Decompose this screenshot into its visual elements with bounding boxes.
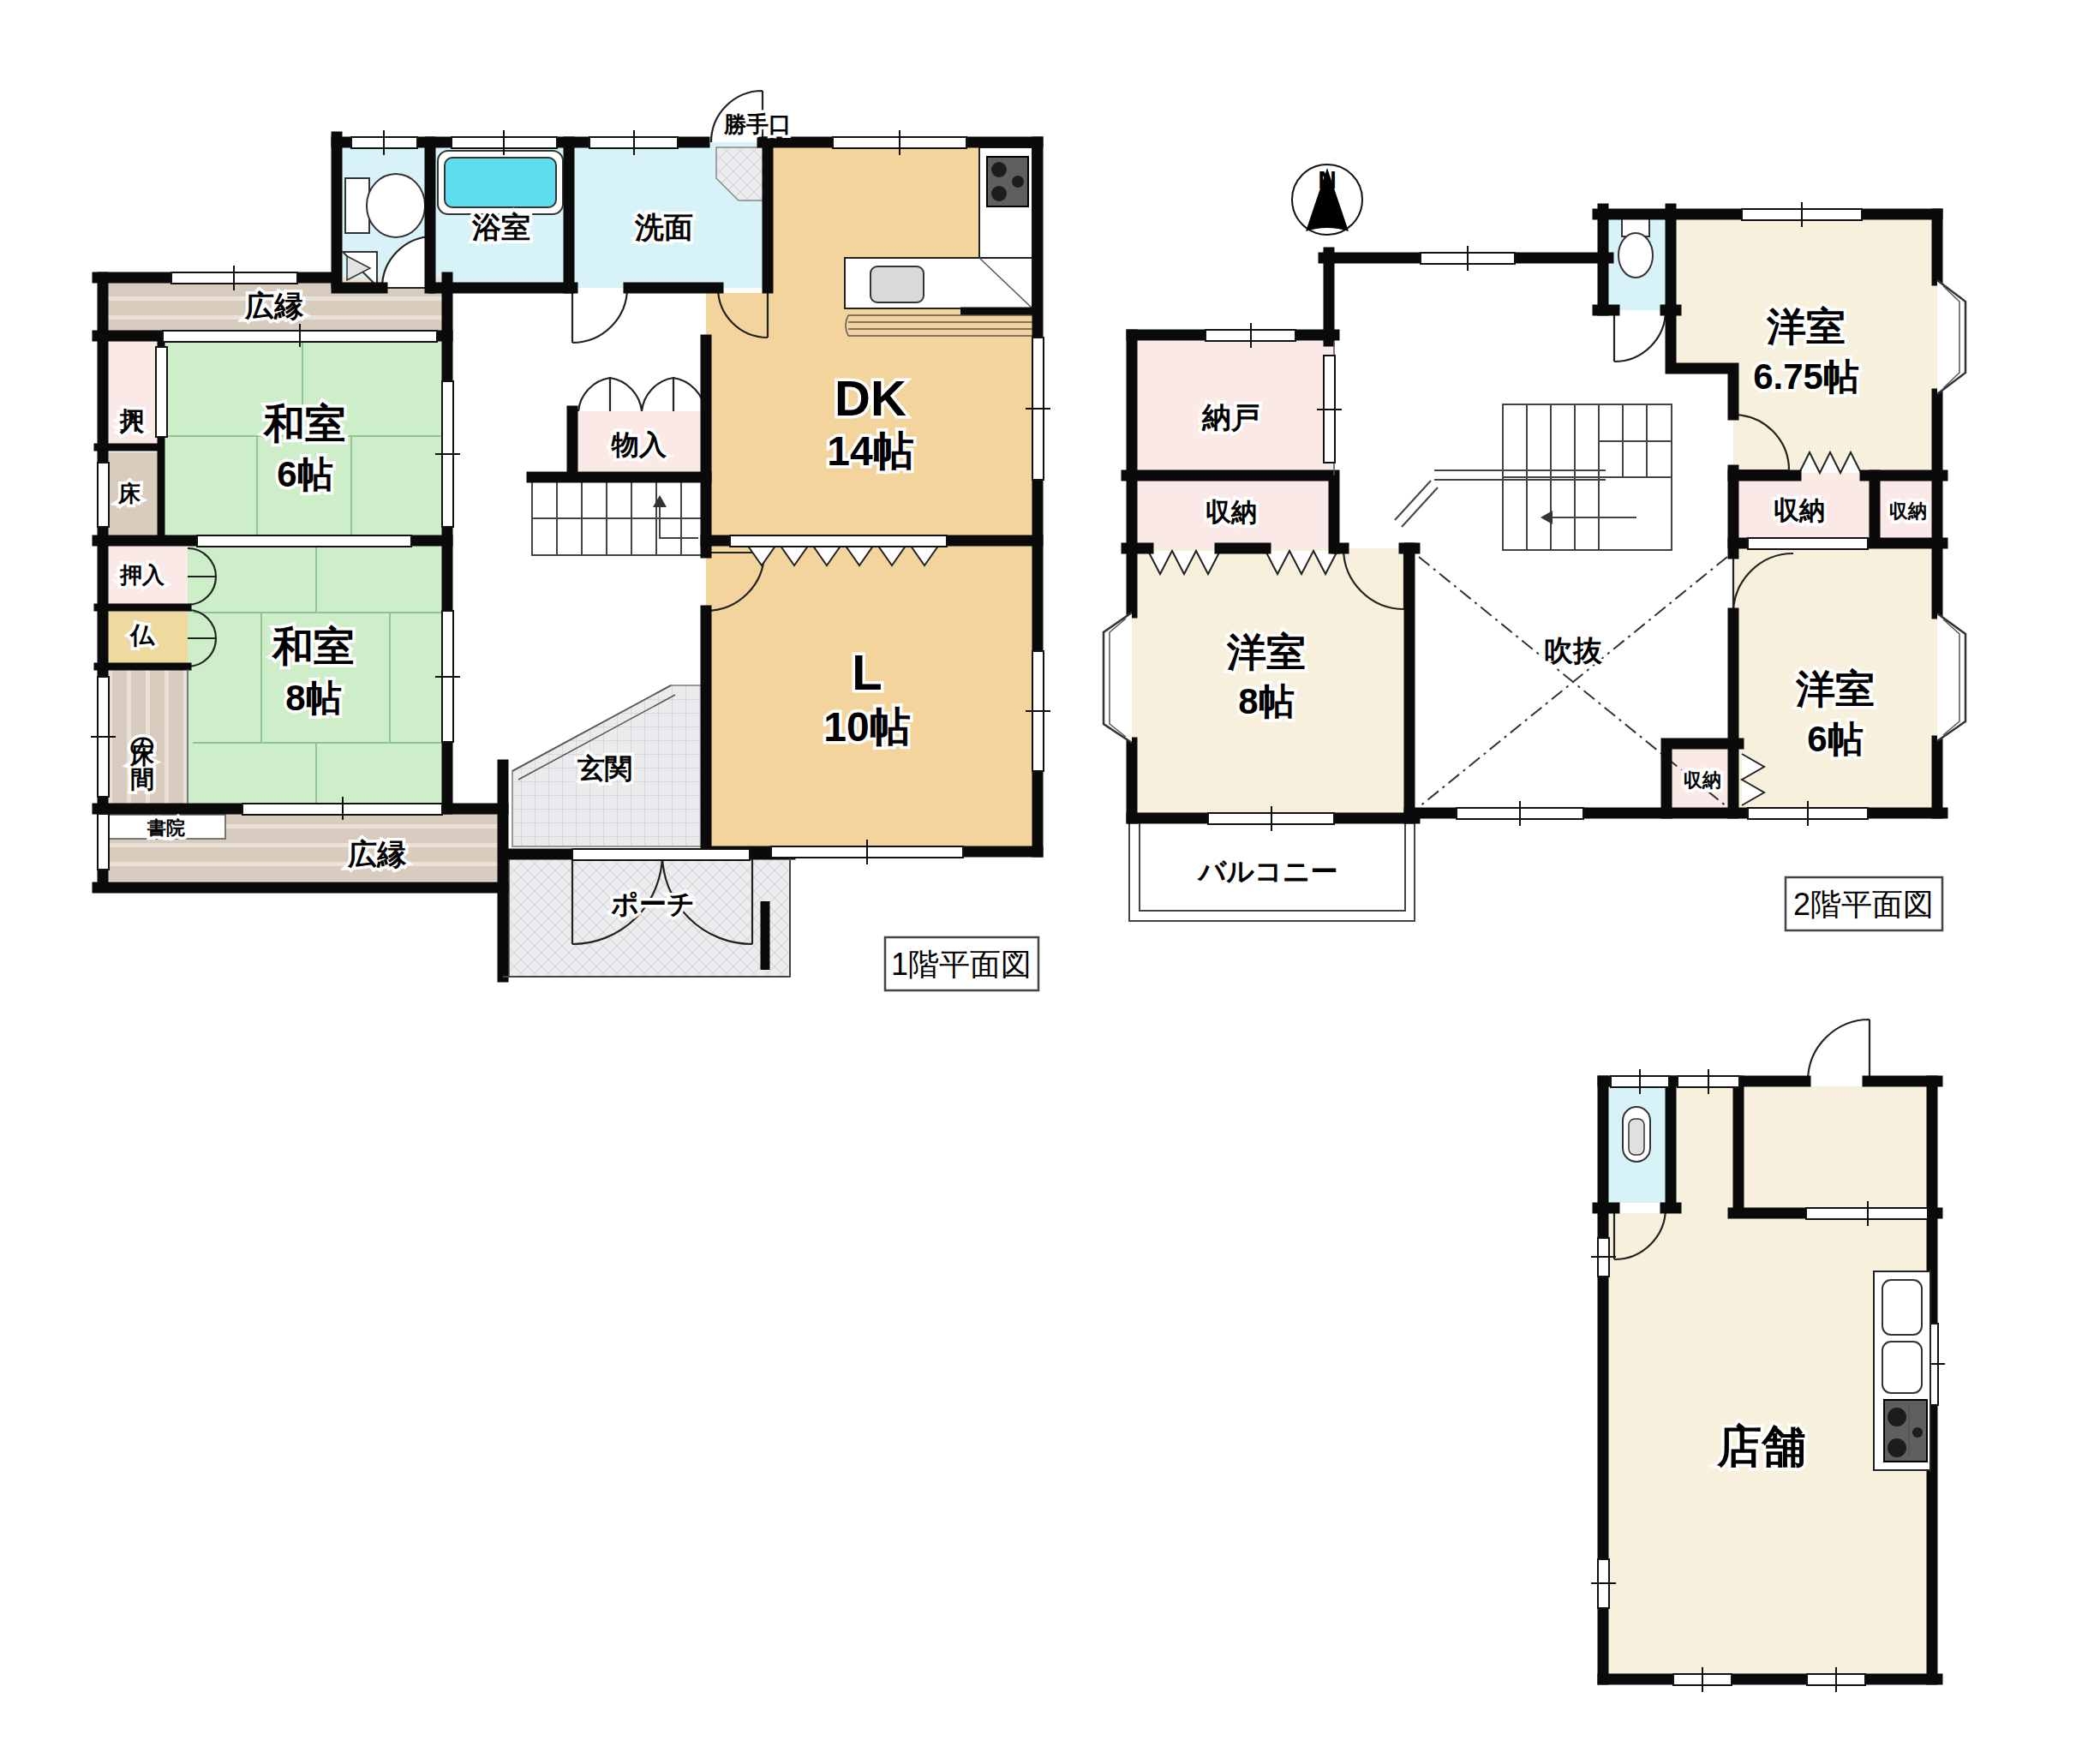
room-label-shuno-left: 収納 [1206, 498, 1257, 526]
store-toilet-icon [1623, 1107, 1650, 1162]
toilet2-door [1614, 310, 1666, 362]
room-label-porch: ポーチ [611, 888, 695, 919]
kitchen-sink [871, 266, 924, 302]
room-size-yoshitsu6: 6帖 [1807, 719, 1863, 759]
floor1-plan: 勝手口 浴室 洗面 DK 14帖 広縁 押入 和室 6帖 床 物入 押入 仏 床… [91, 91, 1050, 990]
room-label-fukinuke: 吹抜 [1544, 634, 1603, 667]
store-back-door [1808, 1020, 1870, 1081]
store-kitchen-fixtures [1874, 1271, 1930, 1470]
bay-window-675 [1937, 280, 1965, 394]
store-plan: 店舗 [1591, 1020, 1945, 1692]
washitsu8-room [188, 541, 447, 809]
floor1-title-box: 1階平面図 [885, 937, 1038, 990]
room-label-katteguchi: 勝手口 [723, 111, 791, 137]
compass-icon: N [1292, 164, 1362, 235]
room-label-toko: 床 [117, 481, 141, 506]
yoshitsu8-closet-accordion-1 [1148, 551, 1220, 574]
room-label-washitsu8: 和室 [271, 624, 355, 669]
room-label-butsu: 仏 [129, 622, 155, 649]
store-corridor [1673, 1086, 1733, 1213]
room-label-oshiire-mid: 押入 [119, 562, 165, 588]
room-label-tenpo: 店舗 [1716, 1421, 1806, 1471]
floor2-title-box: 2階平面図 [1786, 877, 1942, 930]
stairs-2f [1503, 404, 1672, 550]
room-label-shoin: 書院 [147, 817, 185, 839]
toilet1-icon [345, 174, 425, 237]
floor-plan-page: 勝手口 浴室 洗面 DK 14帖 広縁 押入 和室 6帖 床 物入 押入 仏 床… [0, 0, 2100, 1764]
room-label-hiroen-bottom: 広縁 [347, 838, 407, 870]
room-label-hiroen-top: 広縁 [244, 290, 304, 322]
store-backroom [1744, 1086, 1927, 1208]
room-size-yoshitsu8: 8帖 [1238, 681, 1294, 721]
yoshitsu675-closet-accordion [1799, 452, 1861, 473]
room-label-senmen: 洗面 [634, 211, 693, 243]
room-label-monoire: 物入 [611, 429, 667, 460]
wall-1f-veranda-top [98, 137, 337, 283]
wall-2f-top-mid [1324, 253, 1608, 341]
room-label-yoshitsu675: 洋室 [1766, 304, 1846, 349]
room-size-washitsu6: 6帖 [277, 454, 332, 494]
bay-window-6 [1937, 613, 1965, 741]
room-label-shuno-wide: 収納 [1774, 496, 1825, 524]
floor2-title: 2階平面図 [1793, 887, 1934, 922]
store-sink-1 [1882, 1280, 1922, 1335]
bay-window-8 [1104, 613, 1132, 743]
wall-2f-hall-east [1671, 310, 1733, 813]
yoshitsu8-closet-accordion-2 [1265, 551, 1337, 574]
room-size-living: 10帖 [823, 704, 910, 750]
room-size-yoshitsu675: 6.75帖 [1753, 356, 1859, 397]
room-label-dk: DK [835, 370, 906, 426]
stairs-1f [532, 481, 706, 555]
store-sink-2 [1882, 1342, 1922, 1393]
void-dashed-x [1419, 557, 1727, 807]
room-label-shuno-bottom: 収納 [1684, 769, 1721, 791]
bath-door [572, 288, 627, 343]
floor1-title: 1階平面図 [891, 947, 1032, 982]
room-label-genkan: 玄関 [577, 753, 632, 784]
room-size-dk: 14帖 [827, 428, 913, 474]
room-label-nando: 納戸 [1201, 401, 1260, 434]
floor2-plan: N [1104, 164, 1965, 930]
bathtub-icon [445, 158, 556, 207]
room-label-shuno-small: 収納 [1889, 500, 1927, 522]
toilet2-icon [1618, 216, 1653, 278]
monoire-bifold-doors [578, 378, 705, 411]
room-label-yoshitsu6: 洋室 [1795, 667, 1875, 711]
compass-north-label: N [1318, 165, 1337, 194]
room-label-washitsu6: 和室 [262, 401, 346, 446]
room-size-washitsu8: 8帖 [285, 678, 341, 718]
room-label-yokushitsu: 浴室 [471, 211, 530, 243]
room-label-balcony: バルコニー [1197, 856, 1338, 887]
floor-plan-drawing: 勝手口 浴室 洗面 DK 14帖 広縁 押入 和室 6帖 床 物入 押入 仏 床… [0, 0, 2100, 1764]
room-label-living: L [852, 644, 882, 700]
room-label-yoshitsu8: 洋室 [1226, 630, 1306, 674]
